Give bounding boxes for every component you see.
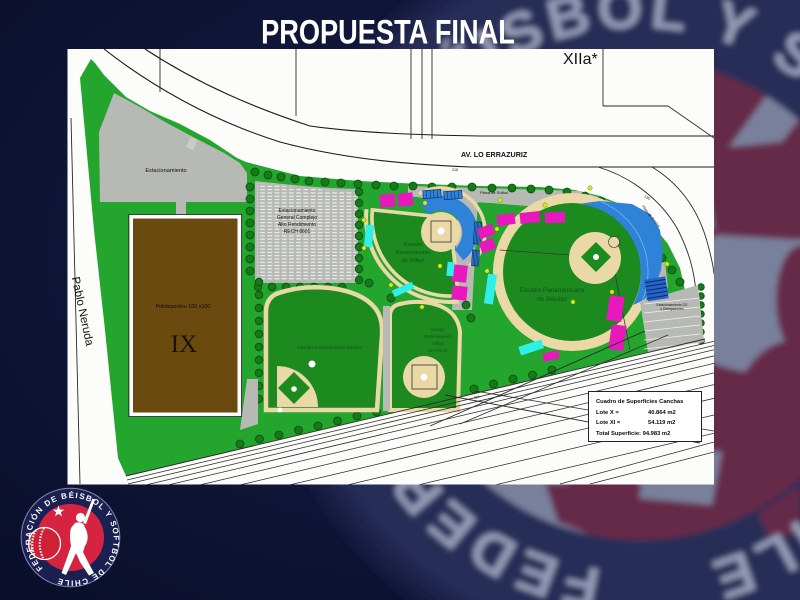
- svg-text:Estadio: Estadio: [404, 242, 422, 248]
- svg-text:de Béisbol: de Béisbol: [537, 296, 567, 303]
- svg-text:Lote XI =: Lote XI =: [596, 420, 621, 426]
- svg-text:AV. LO ERRAZURIZ: AV. LO ERRAZURIZ: [461, 150, 528, 159]
- svg-text:Estacionamiento: Estacionamiento: [279, 208, 316, 214]
- svg-text:Cuadro de Superficies Canchas: Cuadro de Superficies Canchas: [596, 399, 683, 405]
- svg-text:54.119 m2: 54.119 m2: [648, 420, 675, 426]
- svg-text:y Delegaciones: y Delegaciones: [660, 307, 683, 311]
- svg-text:Polideportivo 100 x100: Polideportivo 100 x100: [156, 304, 211, 310]
- svg-text:Estadio Panamericano: Estadio Panamericano: [520, 287, 585, 294]
- svg-text:Panamericano: Panamericano: [396, 250, 431, 256]
- svg-text:Total Superficie: 94.983 m2: Total Superficie: 94.983 m2: [596, 431, 670, 437]
- svg-text:Estacionamiento: Estacionamiento: [145, 168, 186, 174]
- svg-text:Alto Rendimiento: Alto Rendimiento: [278, 222, 316, 228]
- svg-text:PROPUESTA FINAL: PROPUESTA FINAL: [261, 13, 515, 52]
- svg-text:Lote X =: Lote X =: [596, 410, 619, 416]
- svg-text:XIIa*: XIIa*: [563, 51, 598, 68]
- svg-text:IX: IX: [171, 331, 197, 358]
- svg-text:Plaza de Sófbol: Plaza de Sófbol: [480, 190, 508, 195]
- svg-text:Campo Entrenamiento Béisbol: Campo Entrenamiento Béisbol: [297, 345, 362, 351]
- svg-text:Sófbol: Sófbol: [432, 341, 444, 346]
- svg-text:40.864 m2: 40.864 m2: [648, 410, 676, 416]
- svg-text:General Complejo: General Complejo: [277, 215, 318, 221]
- svg-text:218: 218: [452, 168, 458, 172]
- svg-text:RECH 8601: RECH 8601: [284, 229, 311, 235]
- svg-text:(ETAPA 2): (ETAPA 2): [428, 348, 448, 353]
- svg-text:de Sófbol: de Sófbol: [402, 258, 425, 264]
- svg-text:Campo: Campo: [431, 327, 445, 332]
- svg-text:Entrenamiento: Entrenamiento: [424, 334, 452, 339]
